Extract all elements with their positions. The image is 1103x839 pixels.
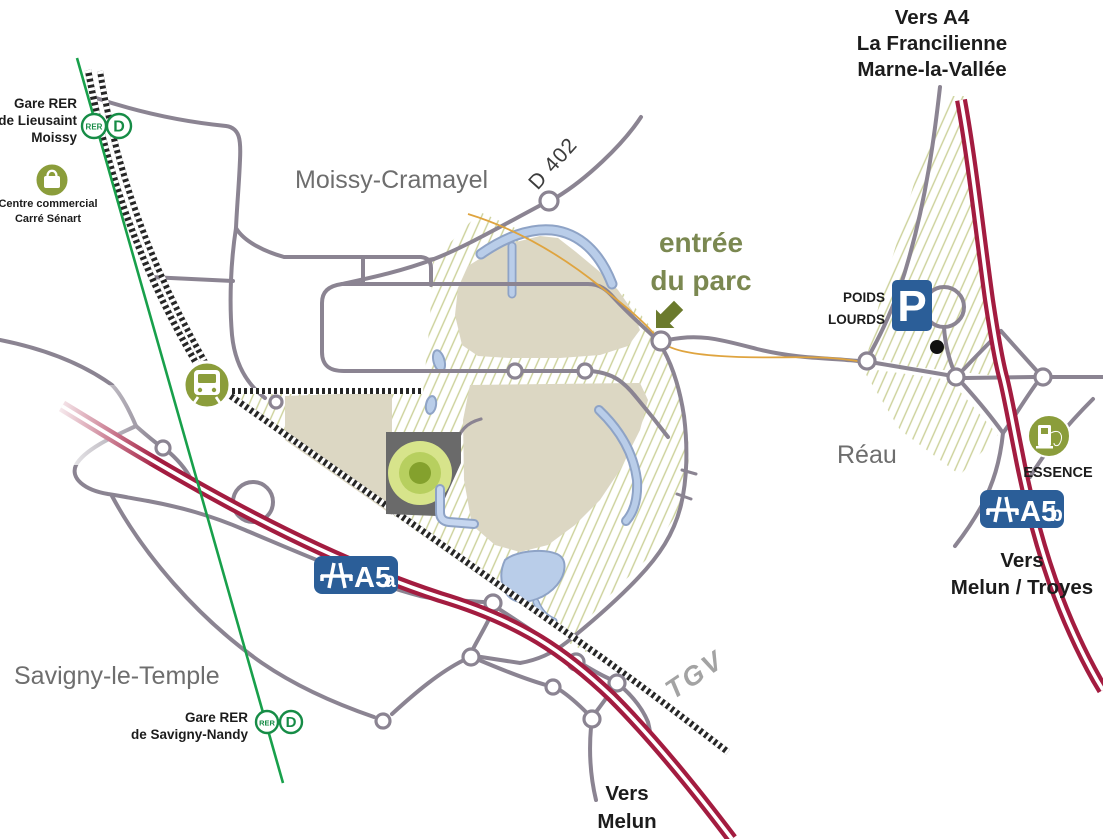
roundabout xyxy=(540,192,558,210)
label-vers-melun-2: Melun xyxy=(597,810,656,833)
label-vers-melun-1: Vers xyxy=(605,782,648,805)
fuel-pump-screen xyxy=(1041,428,1048,434)
fuel-pump-base xyxy=(1036,446,1053,449)
label-entree-1: entrée xyxy=(659,227,743,258)
road-station-curve xyxy=(96,98,265,398)
roundabout xyxy=(1035,369,1051,385)
map-stage: P A5 a A5 b RER D RER D Vers A4 La Franc… xyxy=(0,0,1103,839)
a5a-shield-suffix: a xyxy=(384,569,396,592)
roundabout xyxy=(508,364,522,378)
roundabout xyxy=(270,396,282,408)
label-centre-commercial-1: Centre commercial xyxy=(0,198,98,210)
label-vers-a4-3: Marne-la-Vallée xyxy=(857,58,1006,81)
label-essence: ESSENCE xyxy=(1023,465,1093,481)
line-d-circle-text: D xyxy=(286,714,297,731)
label-poids-lourds-1: POIDS xyxy=(843,290,885,305)
motorway-a5b-median xyxy=(961,100,1103,690)
map-canvas: P A5 a A5 b RER D RER D Vers A4 La Franc… xyxy=(0,0,1103,839)
label-reau: Réau xyxy=(837,441,897,469)
train-light-right xyxy=(212,388,216,392)
location-dot xyxy=(930,340,944,354)
road-loop-top xyxy=(236,228,431,285)
rer-badge-savigny: RER D xyxy=(256,711,302,733)
roundabout xyxy=(859,353,875,369)
label-gare-lieusaint-3: Moissy xyxy=(31,130,77,145)
roundabout xyxy=(652,332,670,350)
motorway-fade xyxy=(50,385,158,465)
roundabout xyxy=(156,441,170,455)
label-moissy-cramayel: Moissy-Cramayel xyxy=(295,166,488,194)
target-marker-inner xyxy=(409,462,431,484)
roundabout xyxy=(584,711,600,727)
ramp-northwest xyxy=(1001,331,1036,370)
shopping-bag-icon xyxy=(36,164,69,197)
label-vers-a4-1: Vers A4 xyxy=(895,6,970,29)
train-window xyxy=(198,374,216,383)
park-entrance-arrow xyxy=(656,301,683,328)
label-vers-melun-troyes-2: Melun / Troyes xyxy=(951,576,1093,599)
label-poids-lourds-2: LOURDS xyxy=(828,312,885,327)
label-savigny-le-temple: Savigny-le-Temple xyxy=(14,662,220,690)
roundabout xyxy=(463,649,479,665)
line-d-circle-text: D xyxy=(113,119,125,136)
label-gare-lieusaint-2: de Lieusaint xyxy=(0,113,78,128)
road-end-circle xyxy=(376,714,390,728)
label-centre-commercial-2: Carré Sénart xyxy=(15,213,81,225)
parking-sign: P xyxy=(892,280,932,331)
label-vers-melun-troyes-1: Vers xyxy=(1000,549,1043,572)
train-station-icon xyxy=(184,362,230,408)
roundabout xyxy=(948,369,964,385)
rer-circle-text: RER xyxy=(86,123,103,132)
train-light-left xyxy=(198,388,202,392)
label-vers-a4-2: La Francilienne xyxy=(857,32,1007,55)
cluster-f-e xyxy=(560,690,587,713)
a5a-shield: A5 a xyxy=(314,556,398,594)
road-park-junction xyxy=(428,259,434,260)
roundabout xyxy=(546,680,560,694)
label-tgv: TGV xyxy=(660,644,730,705)
parking-sign-letter: P xyxy=(897,282,926,331)
fuel-icon xyxy=(1028,415,1070,457)
motorway-a5b xyxy=(961,100,1103,690)
roundabout xyxy=(578,364,592,378)
label-gare-savigny-1: Gare RER xyxy=(185,710,248,725)
cluster-b-southwest xyxy=(392,660,464,714)
label-gare-lieusaint-1: Gare RER xyxy=(14,96,77,111)
a5b-shield: A5 b xyxy=(980,490,1064,528)
rer-circle-text: RER xyxy=(259,719,275,728)
label-gare-savigny-2: de Savigny-Nandy xyxy=(131,727,249,742)
a5b-shield-suffix: b xyxy=(1050,503,1063,526)
label-entree-2: du parc xyxy=(650,265,751,296)
cluster-e-south xyxy=(590,727,596,800)
bag-body xyxy=(44,176,60,188)
